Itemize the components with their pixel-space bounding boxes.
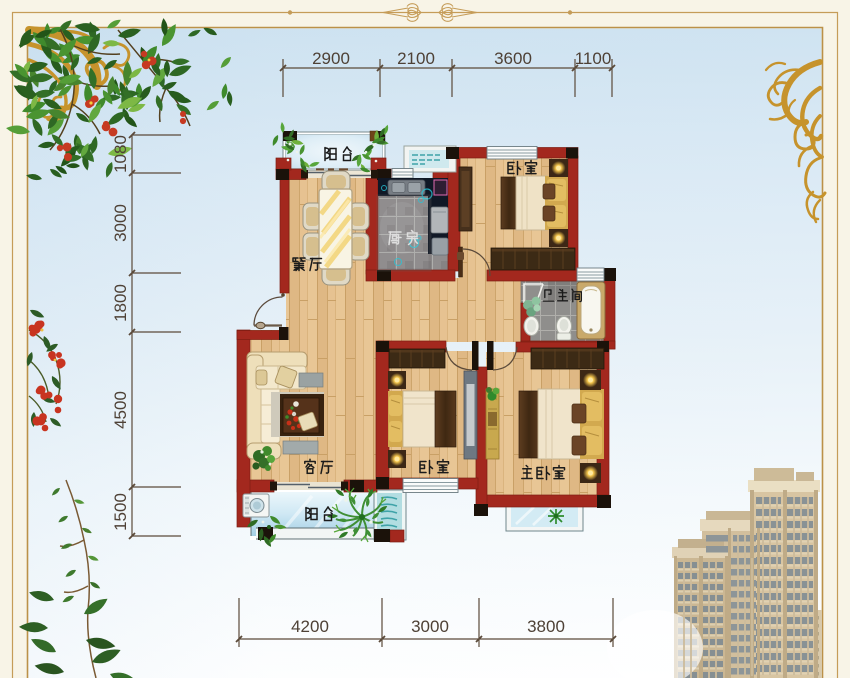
svg-text:1100: 1100 (575, 49, 612, 68)
svg-text:3800: 3800 (527, 617, 565, 636)
svg-text:1500: 1500 (111, 493, 130, 531)
svg-text:2100: 2100 (397, 49, 435, 68)
svg-text:2900: 2900 (312, 49, 350, 68)
svg-text:3600: 3600 (494, 49, 532, 68)
svg-text:3000: 3000 (411, 617, 449, 636)
svg-text:1080: 1080 (111, 135, 130, 173)
svg-text:4500: 4500 (111, 391, 130, 429)
svg-text:3000: 3000 (111, 204, 130, 242)
svg-text:1800: 1800 (111, 284, 130, 322)
svg-text:4200: 4200 (291, 617, 329, 636)
